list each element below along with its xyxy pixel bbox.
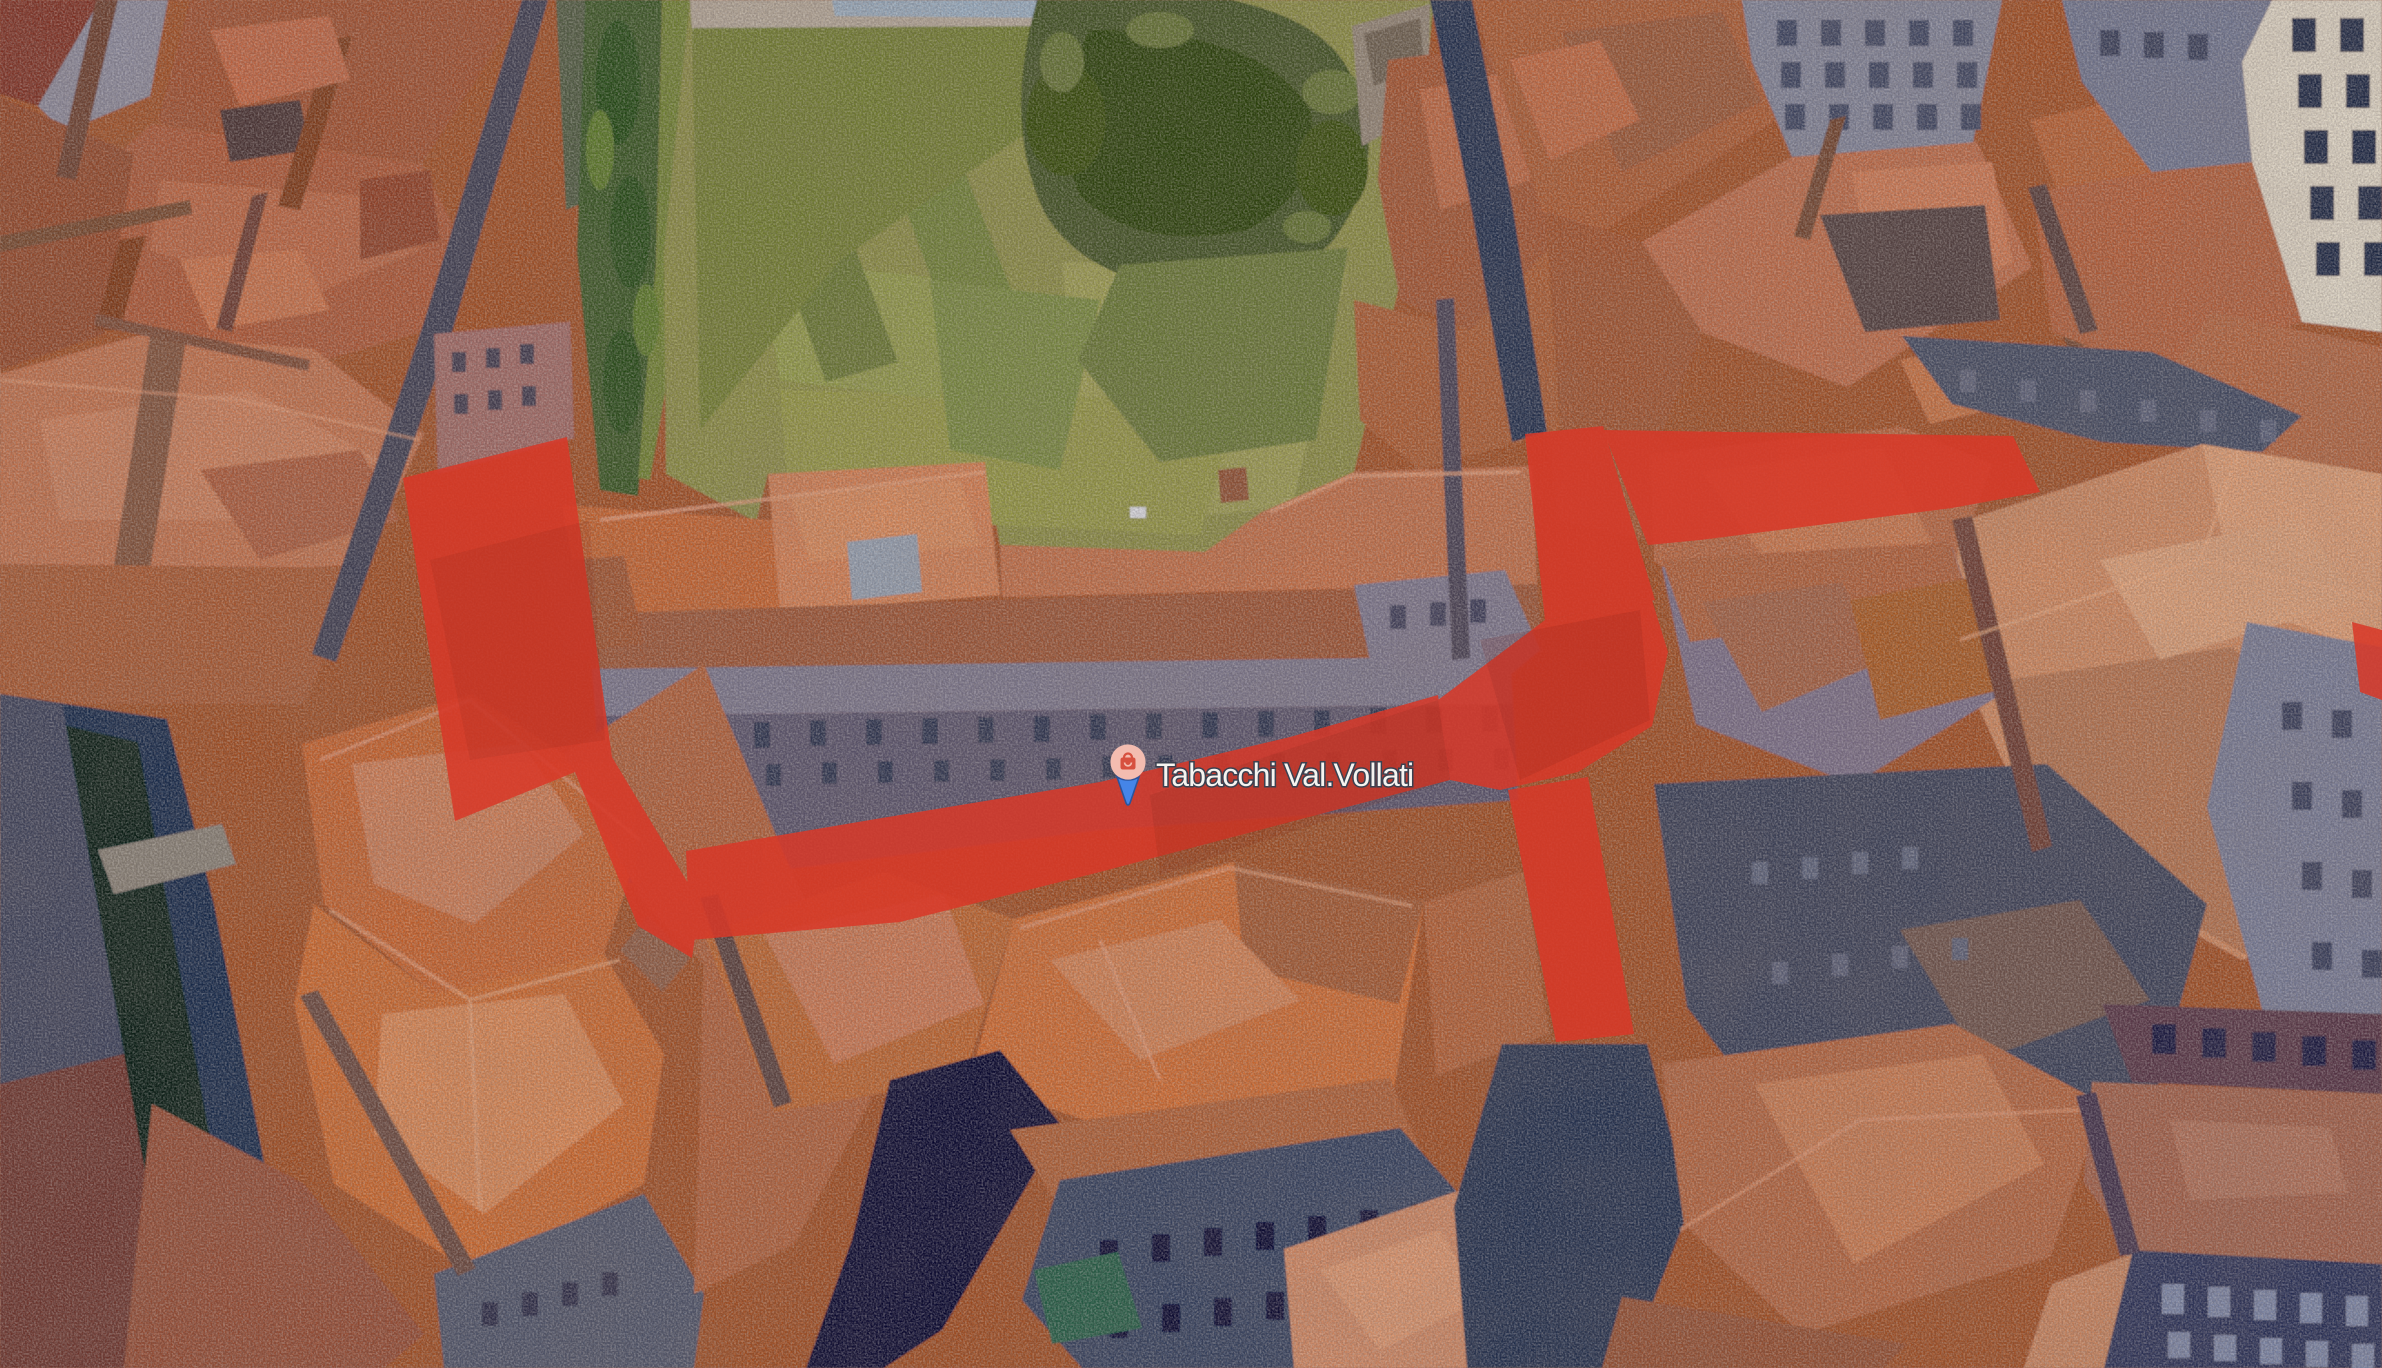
svg-text:Tabacchi Val.Vollati: Tabacchi Val.Vollati — [1156, 757, 1413, 793]
